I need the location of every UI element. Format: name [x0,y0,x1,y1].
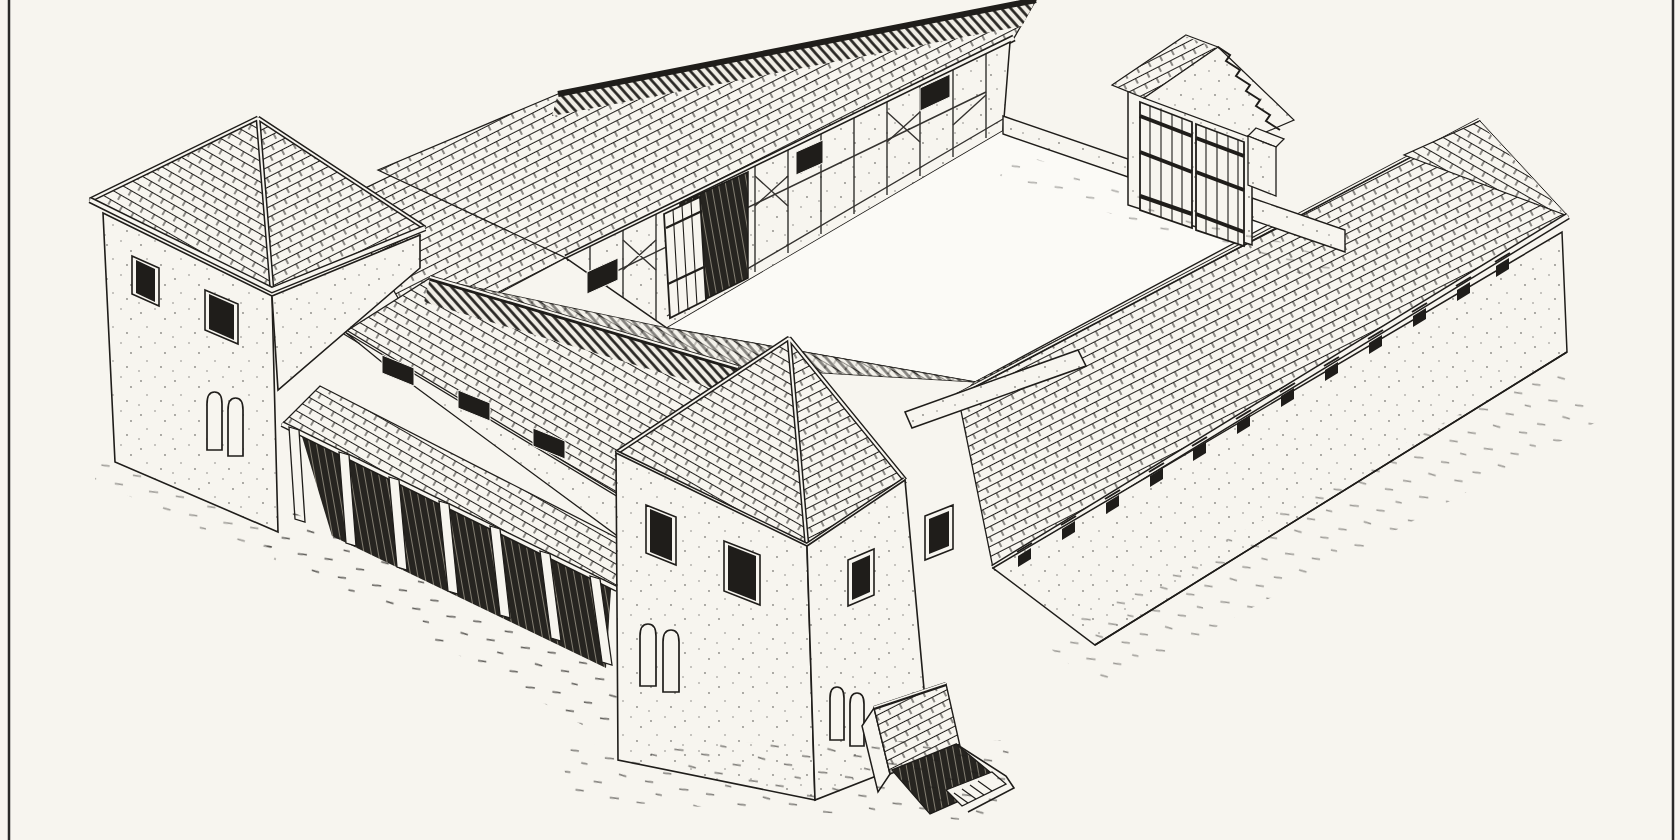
north-range-door-leaf [664,197,706,318]
reconstruction-drawing [0,0,1680,840]
scanned-page [0,0,1680,840]
